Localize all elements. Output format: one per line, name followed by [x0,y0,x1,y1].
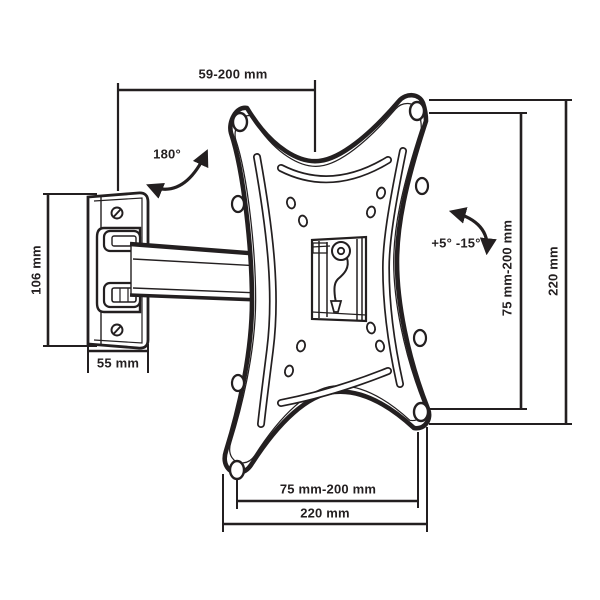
dim-label-bracket-width: 220 mm [300,506,350,521]
dim-label-swivel-angle: 180° [153,147,181,162]
dim-label-vesa-height: 75 mm-200 mm [500,220,515,316]
mounting-arm [130,243,261,300]
vesa-plate [225,95,430,479]
dim-label-arm-extension: 59-200 mm [198,67,267,82]
dim-label-tilt-angle: +5° -15° [431,236,480,251]
mount-diagram: 59-200 mm 180° 106 mm 55 mm +5° -15° 75 … [0,0,600,600]
dim-label-bracket-height: 220 mm [546,246,561,296]
wall-screw-top [112,208,123,219]
dim-label-wall-plate-width: 55 mm [97,356,139,371]
dim-label-wall-plate-height: 106 mm [29,245,44,295]
wall-screw-bottom [112,325,123,336]
center-lock-mechanism [312,237,366,321]
dim-label-vesa-width: 75 mm-200 mm [280,482,376,497]
